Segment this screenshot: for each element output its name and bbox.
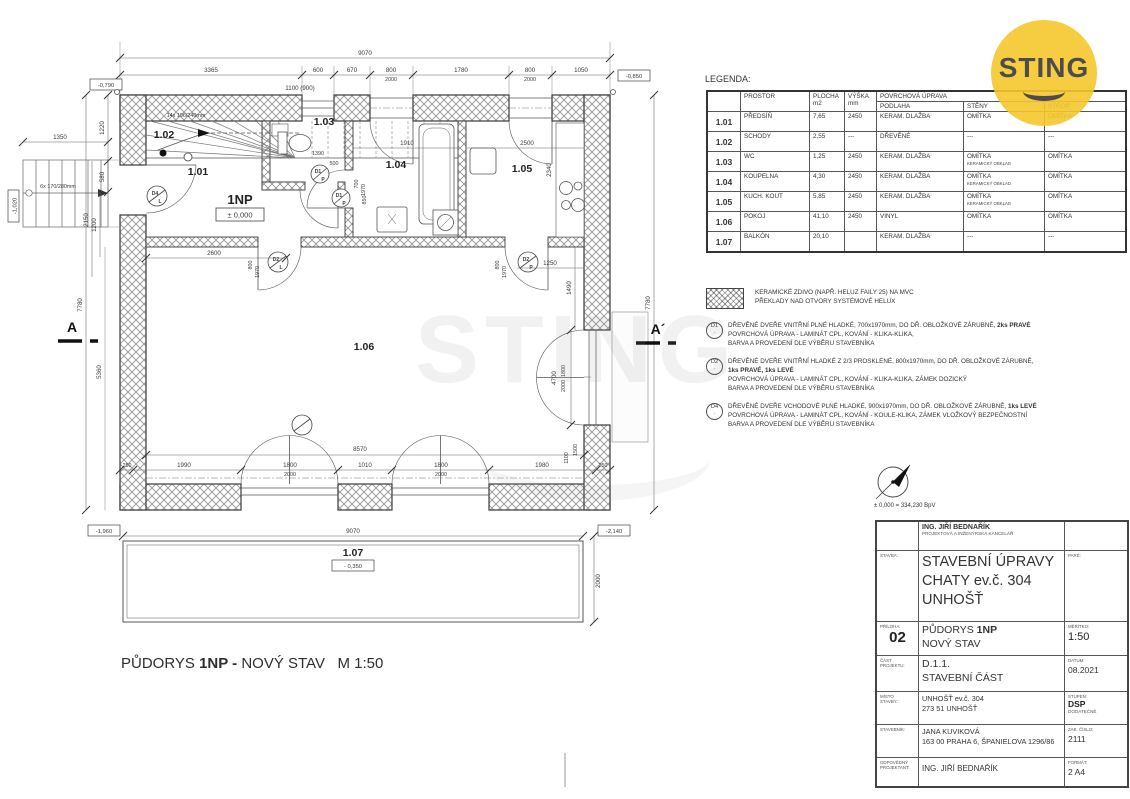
watermark-smile [480,415,710,501]
legend-row-105: 1.05KUCH. KOUT5,852450KERAM. DLAŽBA OMÍT… [707,192,1126,212]
dim-right-1250: 1250 [543,260,557,267]
legend-header-plocha-unit: m2 [813,100,822,107]
dim-door-800l: 800 [248,261,254,270]
legend-header-prostor: PROSTOR [741,91,810,112]
dim-top-8: 1100 (900) [285,85,314,92]
drawing-caption: PŮDORYS 1NP - NOVÝ STAV M 1:50 [121,655,383,672]
legend-header-podlaha: PODLAHA [877,102,964,112]
misto-label1: MÍSTO [880,694,894,699]
note-d4-bubble: D4. [706,403,723,420]
pare-label: PARÉ: [1068,553,1120,558]
floor-label-1np: 1NP [227,192,253,207]
engineer-name: ING. JIŘÍ BEDNAŘÍK [919,758,1065,786]
odp-label1: ODPOVĚDNÝ [880,760,908,765]
stair-post-filled [160,150,167,157]
office-name: ING. JIŘÍ BEDNAŘÍK [922,524,1061,531]
room-label-102: 1.02 [154,129,175,141]
note-d2-bubble: D2. [706,358,723,375]
note-masonry: KERAMICKÉ ZDIVO (NAPŘ. HELUZ FAILY 25) N… [755,288,1130,306]
dim-int-1910: 1910 [400,140,414,147]
north-arrow-icon [876,465,910,499]
dim-bottom-1010: 1010 [358,462,372,469]
survey-point-left [115,90,120,95]
misto-label2: STAVBY: [880,699,898,704]
office-subtitle: PROJEKTOVÁ A INŽENÝRSKÁ KANCELÁŘ [922,531,1061,536]
dim-top-5: 1780 [454,67,468,74]
room-label-105: 1.05 [512,163,533,175]
dim-left-580: 580 [99,171,106,182]
dim-top-6b: 2000 [524,77,536,83]
title-block: ING. JIŘÍ BEDNAŘÍK PROJEKTOVÁ A INŽENÝRS… [875,520,1129,788]
dim-top-total: 9070 [358,50,372,57]
dim-bottom-250l: 250 [123,463,132,469]
sting-logo-text: STING [999,52,1090,84]
dim-bottom-2000b: 2000 [435,472,447,478]
sting-logo-smile-icon [1023,82,1065,101]
watermark-text: STING [415,295,738,405]
titleblock-site-row: MÍSTOSTAVBY: UNHOŠŤ ev.č. 304 273 51 UNH… [877,692,1127,725]
room-label-103: 1.03 [314,116,335,128]
stavba-label: STAVBA: [880,553,915,558]
stavebnik-label: STAVEBNÍK: [880,727,915,732]
dim-right-1490: 1490 [566,281,573,295]
dim-door-700: 700 [354,180,360,189]
level-2140: -2,140 [606,529,622,535]
dim-bottom-2000a: 2000 [284,472,296,478]
legend-row-103: 1.03WC1,252450KERAM. DLAŽBA OMÍTKAKERAMI… [707,152,1126,172]
cast-label1: ČÁST [880,658,892,663]
scale-value: 1:50 [1068,631,1120,643]
level-0850: -0,850 [626,74,642,80]
legend-title: LEGENDA: [705,74,751,84]
format-label: FORMÁT: [1068,760,1120,765]
sheet-title: PŮDORYS 1NP NOVÝ STAV [919,622,1065,655]
date-value: 08.2021 [1068,665,1120,675]
site-address: UNHOŠŤ ev.č. 304 273 51 UNHOŠŤ [919,692,1065,724]
dim-top-3: 670 [347,67,358,74]
note-masonry-line1: KERAMICKÉ ZDIVO (NAPŘ. HELUZ FAILY 25) N… [755,288,1130,297]
stair-post-open [184,153,192,161]
interior-walls [146,121,584,247]
dim-bottom-8570: 8570 [353,446,367,453]
job-number: 2111 [1068,734,1120,744]
door-bubble-d4-side: L [158,199,161,205]
door-bubble-d1-bath: D1 [336,193,343,199]
dim-left-1220: 1220 [99,121,106,135]
legend-row-102: 1.02SCHODY2,55---DŘEVĚNÉ------ [707,132,1126,152]
note-d1-bubble: D1. [706,322,723,339]
dim-top-7: 1050 [574,67,588,74]
dim-bottom-1990: 1990 [177,462,191,469]
sting-logo: STING [991,20,1097,126]
dim-bottom-1800b: 1800 [434,462,448,469]
dim-bottom-9070: 9070 [346,528,360,535]
note-d1: DŘEVĚNÉ DVEŘE VNITŘNÍ PLNÉ HLADKÉ, 700x1… [728,321,1130,348]
format-value: 2 A4 [1068,767,1120,777]
titleblock-office-row: ING. JIŘÍ BEDNAŘÍK PROJEKTOVÁ A INŽENÝRS… [877,522,1127,551]
datum-label: DATUM: [1068,658,1120,663]
dim-top-4: 800 [386,67,397,74]
masonry-hatch-swatch [706,288,744,309]
survey-point-right [611,90,616,95]
titleblock-client-row: STAVEBNÍK: JANA KUVIKOVÁ 163 00 PRAHA 6,… [877,725,1127,758]
note-d4: DŘEVĚNÉ DVEŘE VCHODOVÉ PLNÉ HLADKÉ, 900x… [728,402,1130,429]
dim-door-800rh: 1970 [502,266,508,278]
client-info: JANA KUVIKOVÁ 163 00 PRAHA 6, ŠPANIELOVA… [919,725,1065,757]
titleblock-part-row: ČÁSTPROJEKTU: D.1.1. STAVEBNÍ ČÁST DATUM… [877,656,1127,692]
titleblock-sheet-row: PŘÍLOHA: 02 PŮDORYS 1NP NOVÝ STAV MĚŘÍTK… [877,622,1127,656]
legend-header-plocha: PLOCHAm2 [810,91,845,112]
dim-top-2: 600 [313,67,324,74]
dim-right-2340: 2340 [546,163,553,177]
legend-header-vyska: VÝŠKAmm [845,91,877,112]
door-bubble-d1-wc: D1 [315,169,322,175]
legend-row-104: 1.04KOUPELNA4,302450KERAM. DLAŽBA OMÍTKA… [707,172,1126,192]
level-0000: ± 0,000 [228,211,253,220]
level-0350: - 0,350 [344,564,362,570]
stair-spec-interior: 14x 196/240mm [167,113,206,119]
datum-note: ± 0,000 = 334,230 BpV [874,503,936,509]
part-title: D.1.1. STAVEBNÍ ČÁST [919,656,1065,691]
legend-header-vyska-unit: mm [848,100,859,107]
dim-bottom-1800a: 1800 [283,462,297,469]
stair-spec-exterior: 6x 170/280mm [40,184,76,190]
stage-note: DODATEČNĚ [1068,709,1120,714]
dim-left-5360: 5360 [96,365,103,379]
sheet-number: 02 [880,629,915,646]
titleblock-engineer-row: ODPOVĚDNÝPROJEKTANT: ING. JIŘÍ BEDNAŘÍK … [877,758,1127,786]
level-1020: -1,020 [13,198,19,214]
dim-int-2500: 2500 [520,140,534,147]
door-bubble-d2-left-side: L [279,265,282,271]
legend-row-107: 1.07BALKÓN20,10KERAM. DLAŽBA------ [707,232,1126,253]
zak-label: ZAK. ČÍSLO: [1068,727,1120,732]
dim-balcony-2000: 2000 [595,574,602,588]
dim-int-1390: 1390 [312,151,324,157]
dim-left-1200: 1200 [91,218,98,232]
level-0790: -0,790 [98,83,114,89]
dim-top-1: 3365 [204,67,218,74]
note-masonry-line2: PŘEKLADY NAD OTVORY SYSTÉMOVÉ HELUX [755,297,1130,306]
meritko-label: MĚŘÍTKO: [1068,624,1120,629]
dim-door-800lh: 1970 [255,266,261,278]
section-mark-a: A [67,319,77,335]
door-bubble-d2-right: D2 [523,257,530,263]
dim-top-4b: 2000 [385,77,397,83]
dim-left-2150: 2150 [83,213,90,227]
dim-left-7780: 7780 [77,298,84,312]
dim-door-800r: 800 [495,261,501,270]
level-1960: -1,960 [96,529,112,535]
room-label-106: 1.06 [354,341,375,353]
room-label-101: 1.01 [188,166,209,178]
dim-top-6: 800 [525,67,536,74]
room-label-104: 1.04 [386,159,407,171]
dim-int-500: 500 [330,161,339,167]
drawing-sheet: D4 L D1 P D1 P D2 L D2 P 1.01 1.02 1.03 … [0,0,1130,799]
cast-label2: PROJEKTU: [880,663,905,668]
room-label-107: 1.07 [343,547,364,559]
dim-left-1350: 1350 [53,134,67,141]
dim-int-2600: 2600 [207,250,221,257]
project-title: STAVEBNÍ ÚPRAVY CHATY ev.č. 304 UNHOŠŤ [919,551,1065,621]
stage-value: DSP [1068,699,1120,709]
legend-row-106: 1.06POKOJ41,102450VINYLOMÍTKAOMÍTKA [707,212,1126,232]
door-bubble-d4: D4 [152,191,159,197]
titleblock-project-row: STAVBA: STAVEBNÍ ÚPRAVY CHATY ev.č. 304 … [877,551,1127,622]
dim-door-700h: 1970 [361,184,367,196]
note-d2: DŘEVĚNÉ DVEŘE VNITŘNÍ HLADKÉ Z 2/3 PROSK… [728,357,1130,394]
odp-label2: PROJEKTANT: [880,765,909,770]
